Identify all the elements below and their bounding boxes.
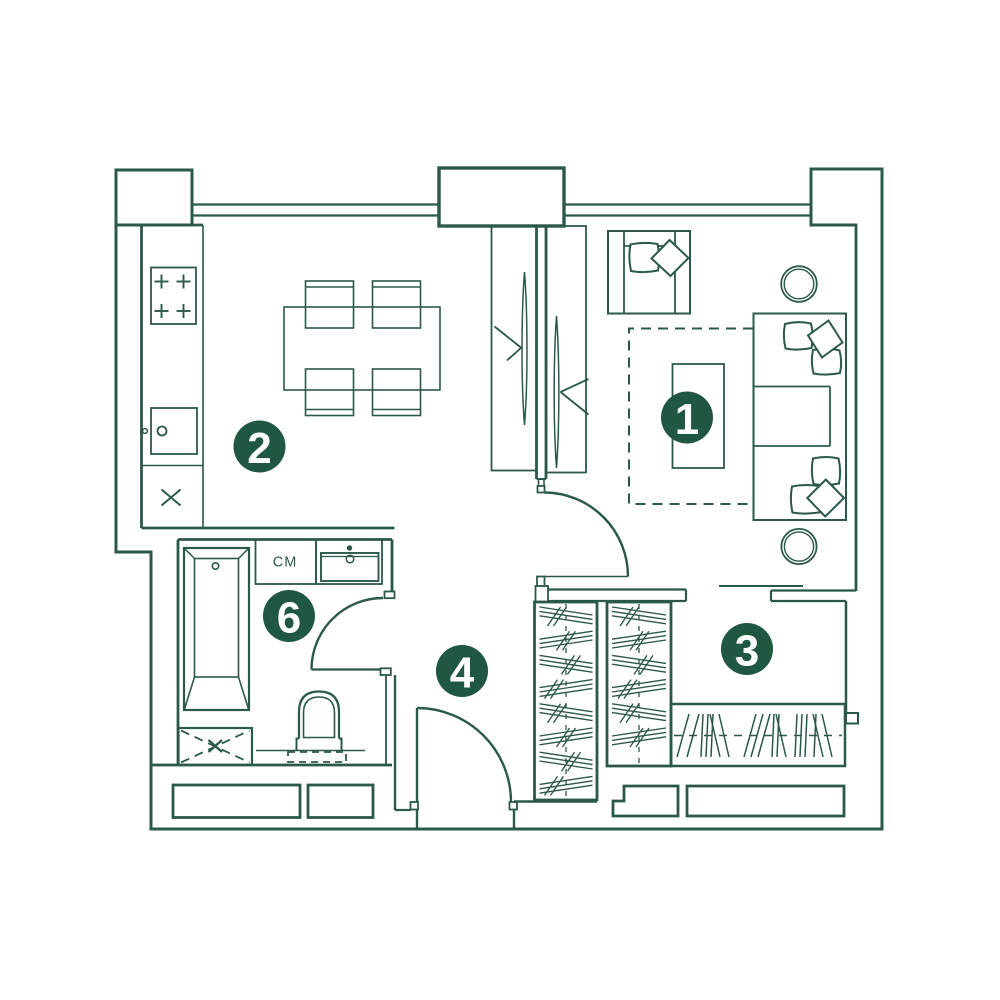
svg-text:3: 3	[735, 627, 759, 676]
svg-text:6: 6	[277, 594, 301, 643]
svg-text:CM: CM	[273, 555, 298, 571]
svg-text:2: 2	[247, 424, 271, 473]
svg-text:4: 4	[450, 649, 475, 698]
svg-text:1: 1	[675, 395, 699, 444]
